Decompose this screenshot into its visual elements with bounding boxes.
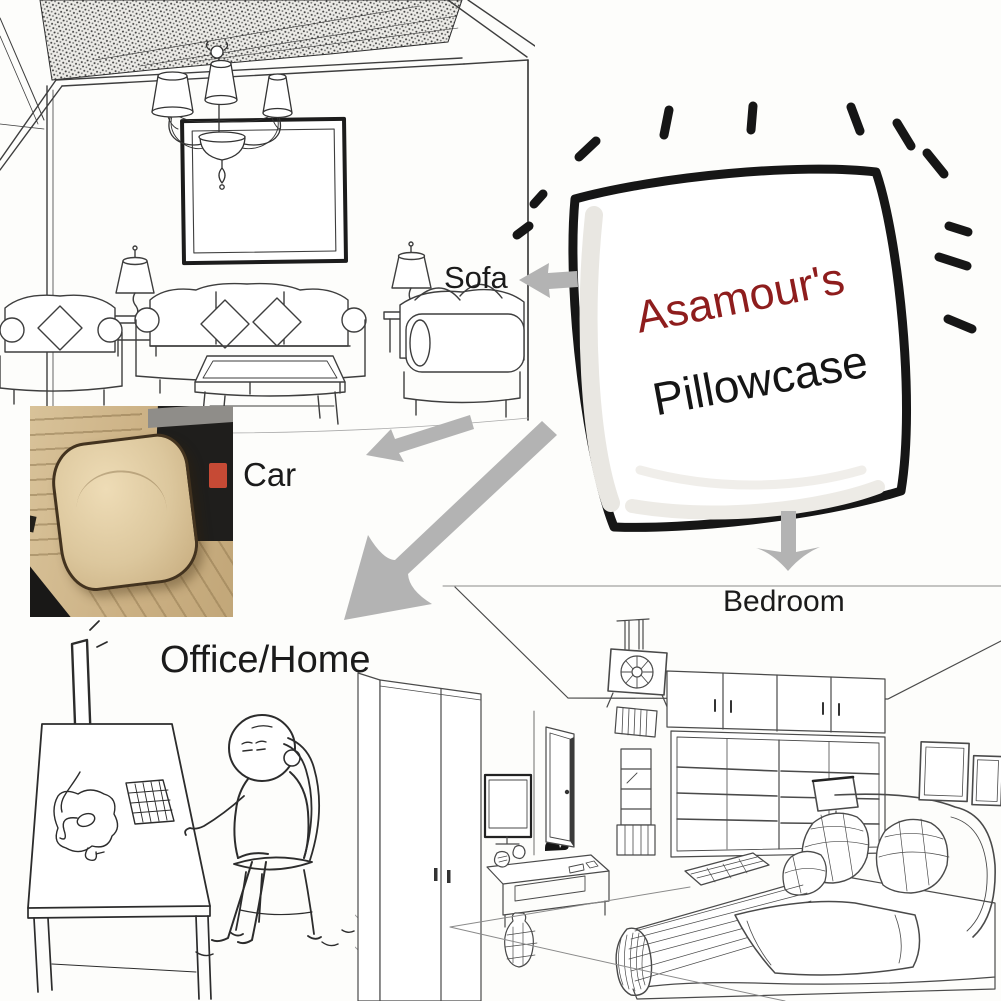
wall-frames <box>919 742 1001 806</box>
bedroom-label: Bedroom <box>723 586 845 618</box>
wardrobe <box>358 673 481 1001</box>
tv-console <box>487 837 609 967</box>
wall-tv <box>485 711 534 855</box>
pillowcase-usage-infographic: Sofa Car Office/Home Bedroom Asamour's P… <box>0 0 1001 1001</box>
arrow-to-bedroom-icon <box>756 511 820 571</box>
pillow-seam <box>76 468 168 548</box>
door <box>546 727 574 847</box>
sofa-label: Sofa <box>444 262 508 295</box>
shelf-column <box>617 749 655 855</box>
person <box>185 715 308 943</box>
pillow-product-text: Pillowcase <box>627 330 892 430</box>
pillow-brand-text: Asamour's <box>612 249 867 348</box>
armchair-right <box>400 284 524 417</box>
desk <box>28 724 211 999</box>
car-floor-shadow <box>30 566 71 617</box>
overhead-cabinets <box>667 671 885 733</box>
armchair-left <box>0 295 122 405</box>
seatbelt-buckle <box>209 463 227 488</box>
ceiling-fan-unit <box>607 619 668 737</box>
office-home-label: Office/Home <box>160 641 370 681</box>
car-label: Car <box>243 458 296 493</box>
car-seat-photo <box>30 406 233 617</box>
car-pillow <box>48 430 203 595</box>
ground-squiggles <box>196 930 354 956</box>
bedroom-sketch <box>355 585 1001 1001</box>
